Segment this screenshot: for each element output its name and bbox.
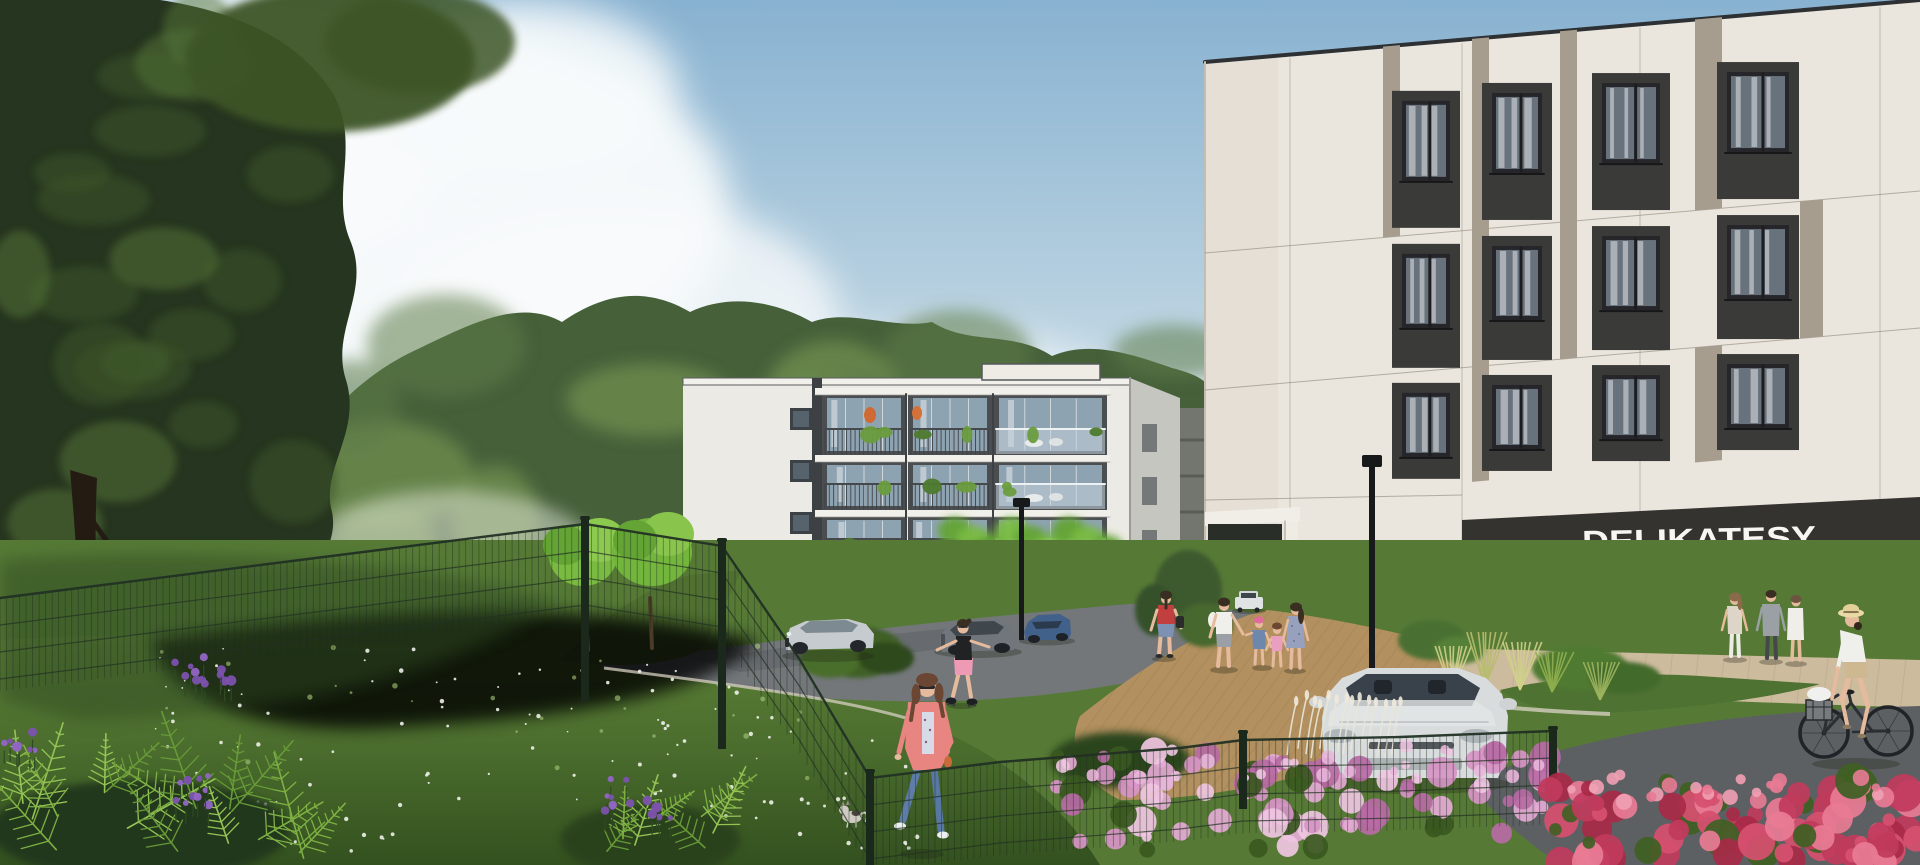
side-window [1142,477,1157,505]
orange-plant [864,407,876,423]
balcony-slab [815,388,1110,395]
window [1717,215,1799,339]
lamp-head [1013,498,1030,507]
window [1592,226,1670,350]
render-image: DELIKATESY [0,0,1920,865]
window [1392,244,1460,368]
lamp-post [1019,505,1024,640]
accent-strip [1800,199,1823,338]
bag-in-basket [1807,687,1831,701]
window [1482,83,1552,220]
balcony-slab [815,455,1110,462]
orange-plant [912,406,922,420]
balcony [908,394,992,455]
window [1482,236,1552,360]
fence-post [866,772,874,865]
fence-post [1239,733,1247,809]
window [1592,365,1670,461]
balcony [822,461,906,510]
window [1592,73,1670,210]
window [1482,375,1552,471]
scene-canvas: DELIKATESY [0,0,1920,865]
window [1392,91,1460,228]
window [1392,383,1460,479]
window [1717,62,1799,199]
penthouse [982,364,1100,380]
lamp-post [1369,463,1375,698]
balcony-slab [815,510,1110,517]
balcony [994,394,1107,455]
balcony [994,461,1107,510]
fence-post [718,541,726,749]
accent-strip [1560,30,1577,359]
dark-strip [812,378,822,568]
window [1717,354,1799,450]
balcony [908,461,992,510]
balcony [822,394,906,455]
side-window [1142,424,1157,452]
bicycle-basket [1806,700,1832,720]
fence-post [581,519,589,701]
lamp-head [1362,455,1382,467]
